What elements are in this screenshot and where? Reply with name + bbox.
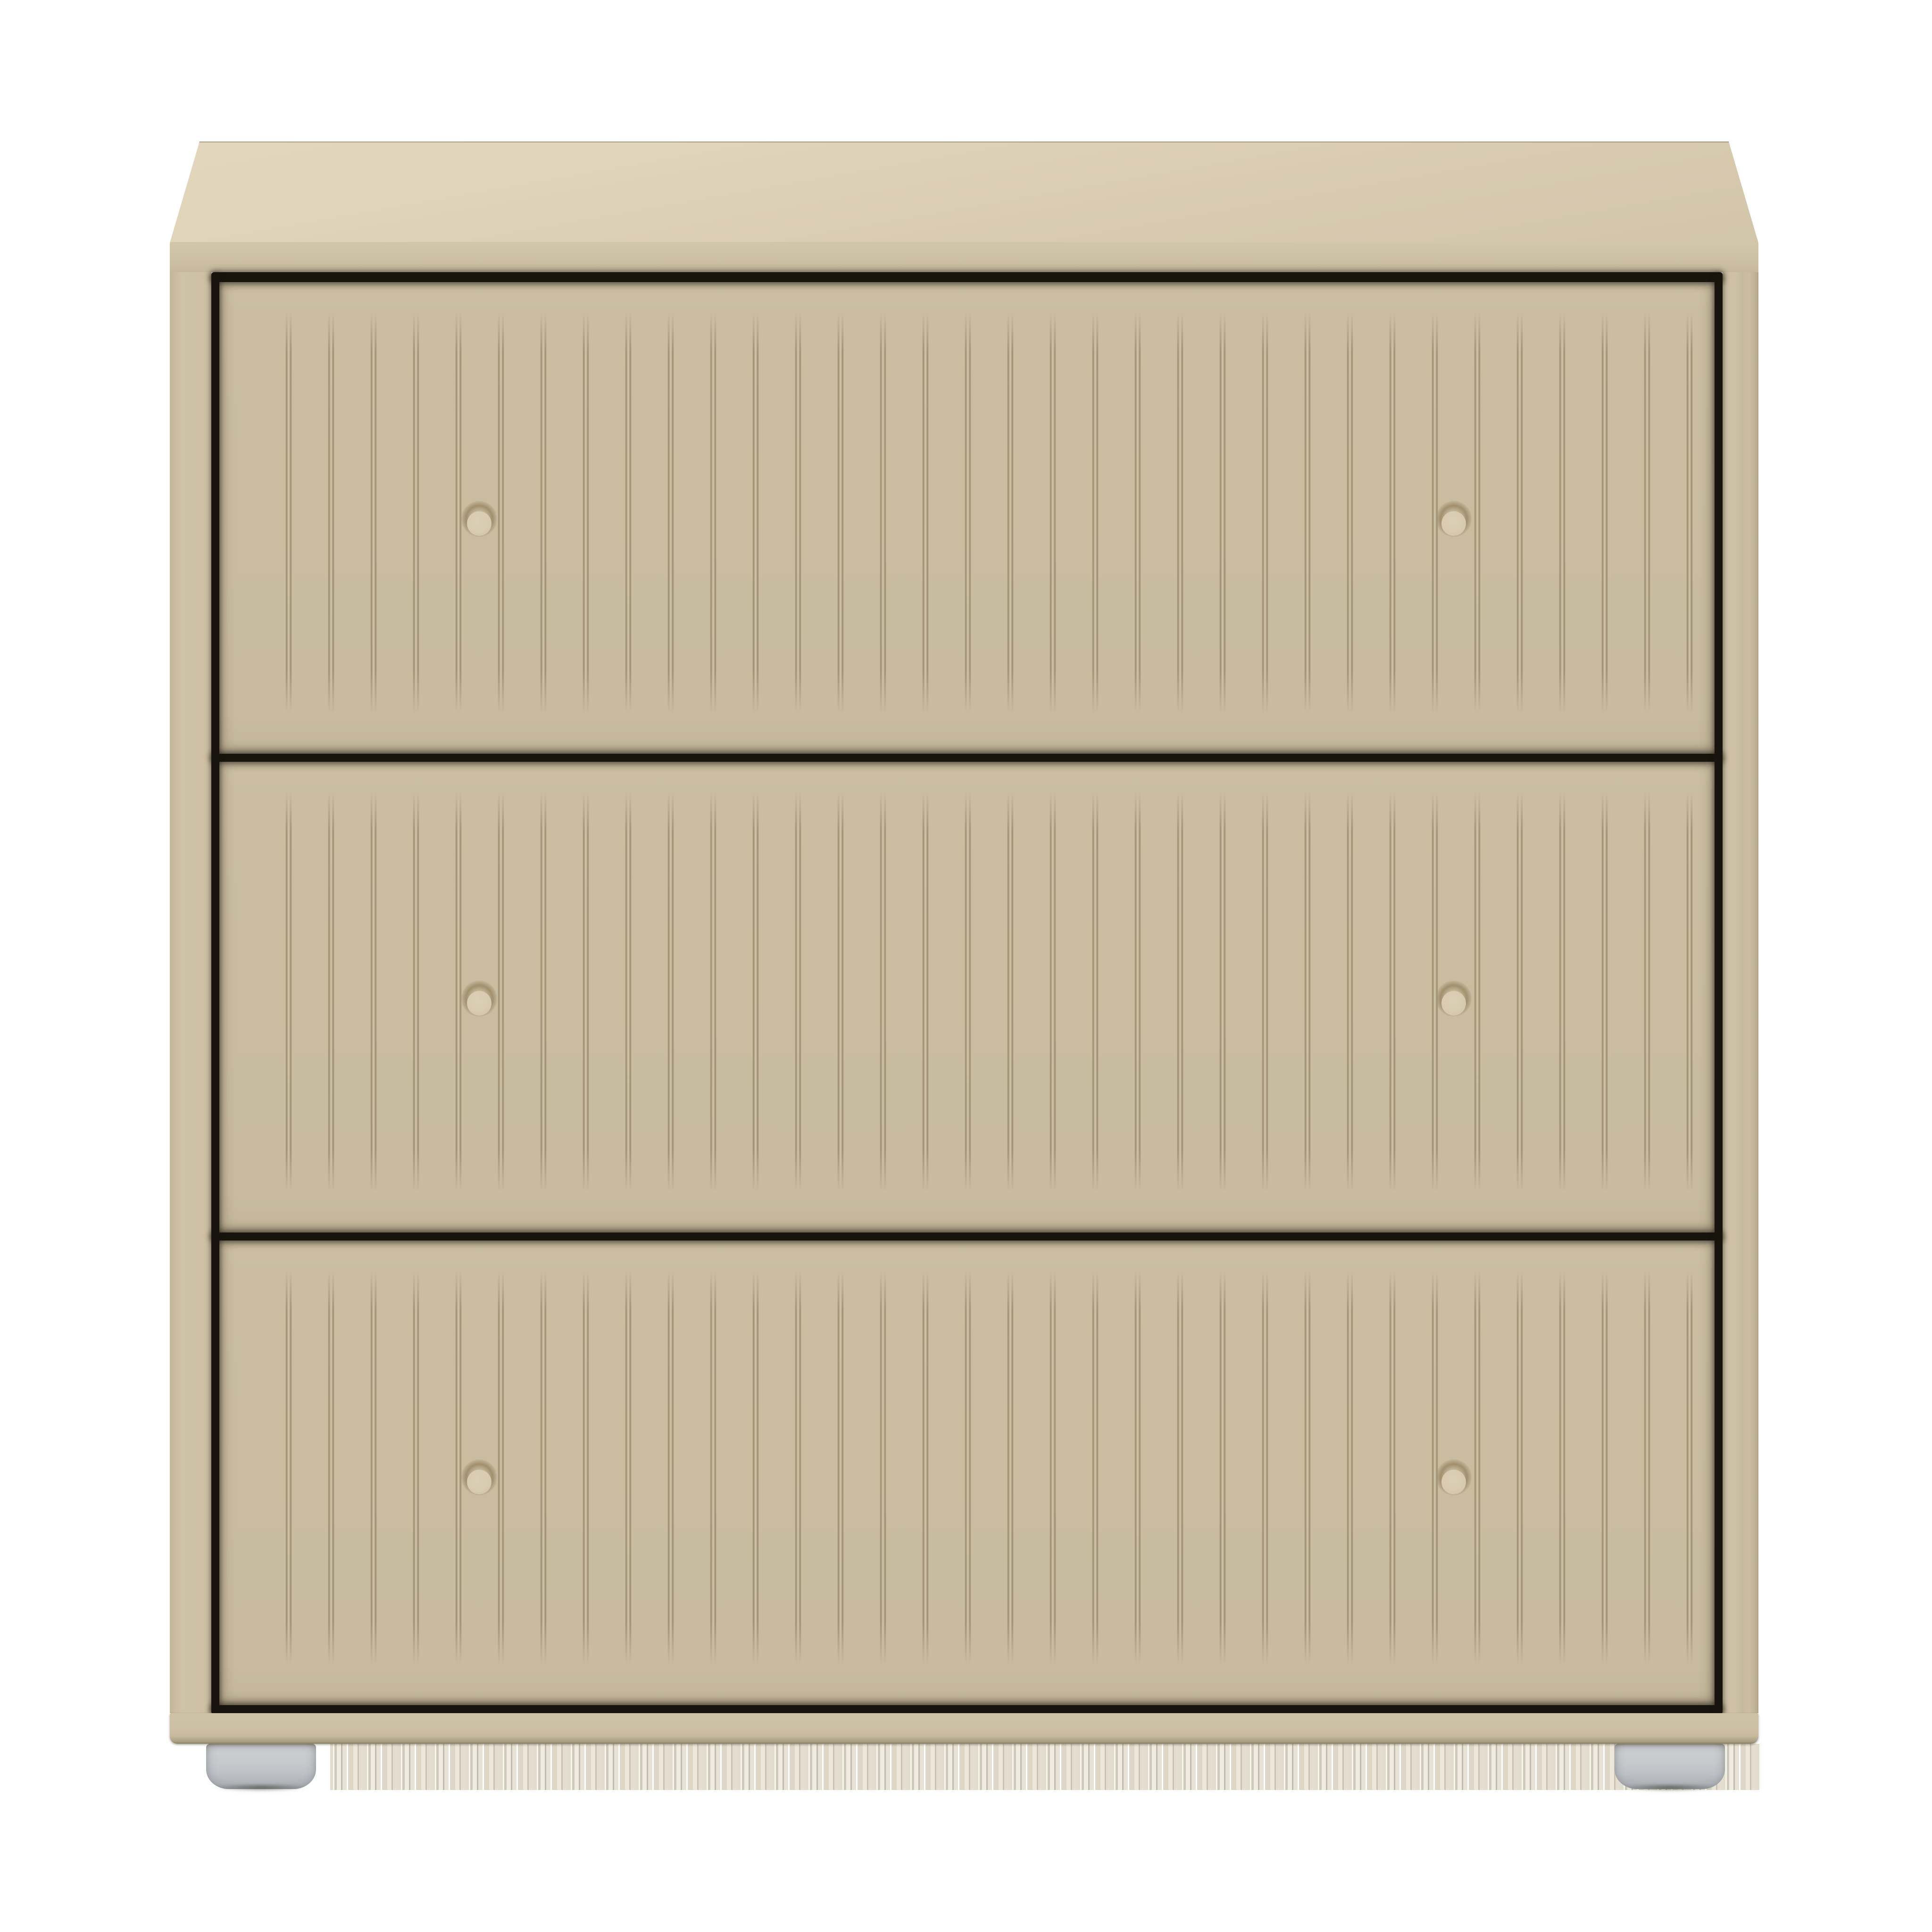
flute-groove [1389, 312, 1396, 712]
flute-groove [1644, 1271, 1650, 1664]
flute-groove [880, 312, 886, 712]
flute-groove [1601, 792, 1608, 1191]
flute-groove [752, 312, 759, 712]
flute-groove [1474, 792, 1481, 1191]
flute-groove [1686, 792, 1693, 1191]
flute-groove [1219, 1271, 1226, 1664]
flute-groove [328, 1271, 334, 1664]
base-rail [170, 1713, 1758, 1744]
flute-groove [1092, 312, 1099, 712]
panel-gap-top [211, 272, 1723, 282]
dresser [170, 142, 1758, 1744]
product-image: Product render of a beige three-drawer c… [0, 0, 1932, 1932]
drawer-2 [219, 762, 1715, 1232]
flute-groove [285, 312, 292, 712]
flute-groove [922, 792, 929, 1191]
flute-groove [583, 792, 589, 1191]
flute-groove [1092, 792, 1099, 1191]
flute-groove [1559, 792, 1566, 1191]
flute-groove [625, 1271, 632, 1664]
flute-groove [1601, 1271, 1608, 1664]
flute-groove [1516, 1271, 1523, 1664]
flute-groove [922, 312, 929, 712]
flute-groove [1389, 792, 1396, 1191]
drawer-grooves [219, 792, 1715, 1191]
flute-groove [1474, 1271, 1481, 1664]
flute-groove [540, 312, 547, 712]
matte-artifact-band [330, 1744, 1759, 1790]
flute-groove [1177, 1271, 1183, 1664]
flute-groove [1134, 792, 1141, 1191]
drawer-3-knob-left [461, 1461, 497, 1497]
flute-groove [285, 792, 292, 1191]
flute-groove [413, 792, 419, 1191]
dresser-top [170, 142, 1758, 243]
drawer-grooves [219, 1271, 1715, 1664]
flute-groove [583, 312, 589, 712]
side-stile-left [170, 272, 211, 1713]
foot-shadow [215, 1784, 308, 1791]
flute-groove [285, 1271, 292, 1664]
flute-groove [1049, 792, 1056, 1191]
panel-gap-right [1715, 274, 1723, 1715]
drawer-1-knob-left [461, 502, 497, 538]
flute-groove [498, 1271, 504, 1664]
flute-groove [625, 312, 632, 712]
flute-groove [370, 312, 377, 712]
flute-groove [328, 312, 334, 712]
image-description: Product render of a beige three-drawer c… [0, 0, 0, 0]
flute-groove [1644, 792, 1650, 1191]
side-stile-right [1723, 272, 1758, 1713]
drawer-2-knob-left [461, 982, 497, 1018]
flute-groove [1601, 312, 1608, 712]
flute-groove [1686, 1271, 1693, 1664]
flute-groove [1644, 312, 1650, 712]
flute-groove [710, 312, 716, 712]
flute-groove [370, 1271, 377, 1664]
flute-groove [1347, 312, 1353, 712]
flute-groove [498, 312, 504, 712]
flute-groove [1219, 792, 1226, 1191]
drawer-3 [219, 1241, 1715, 1705]
flute-groove [667, 1271, 674, 1664]
flute-groove [1347, 792, 1353, 1191]
flute-groove [1262, 1271, 1268, 1664]
flute-groove [455, 1271, 462, 1664]
flute-groove [1559, 312, 1566, 712]
flute-groove [1219, 312, 1226, 712]
drawer-grooves [219, 312, 1715, 712]
flute-groove [328, 792, 334, 1191]
flute-groove [540, 792, 547, 1191]
flute-groove [1007, 1271, 1014, 1664]
flute-groove [710, 792, 716, 1191]
foot-shadow [1624, 1784, 1716, 1791]
flute-groove [965, 1271, 971, 1664]
flute-groove [795, 792, 801, 1191]
panel-gap-left [211, 274, 219, 1715]
flute-groove [1049, 312, 1056, 712]
flute-groove [1262, 312, 1268, 712]
flute-groove [667, 792, 674, 1191]
drawer-1-knob-right [1436, 502, 1472, 538]
flute-groove [1304, 792, 1311, 1191]
flute-groove [455, 792, 462, 1191]
flute-groove [880, 792, 886, 1191]
flute-groove [625, 792, 632, 1191]
flute-groove [370, 792, 377, 1191]
flute-groove [540, 1271, 547, 1664]
panel-gap-2-3 [211, 1232, 1723, 1241]
flute-groove [795, 312, 801, 712]
flute-groove [1134, 1271, 1141, 1664]
flute-groove [455, 312, 462, 712]
flute-groove [1177, 792, 1183, 1191]
flute-groove [1516, 312, 1523, 712]
flute-groove [1686, 312, 1693, 712]
flute-groove [1049, 1271, 1056, 1664]
flute-groove [1304, 312, 1311, 712]
flute-groove [1007, 312, 1014, 712]
flute-groove [965, 312, 971, 712]
flute-groove [413, 312, 419, 712]
panel-gap-bottom [211, 1705, 1723, 1713]
flute-groove [498, 792, 504, 1191]
flute-groove [1177, 312, 1183, 712]
flute-groove [1559, 1271, 1566, 1664]
flute-groove [1262, 792, 1268, 1191]
flute-groove [1389, 1271, 1396, 1664]
drawer-1 [219, 282, 1715, 754]
flute-groove [1134, 312, 1141, 712]
flute-groove [710, 1271, 716, 1664]
flute-groove [880, 1271, 886, 1664]
flute-groove [1007, 792, 1014, 1191]
flute-groove [752, 1271, 759, 1664]
drawer-2-knob-right [1436, 982, 1472, 1018]
flute-groove [1474, 312, 1481, 712]
cabinet-foot-right [1615, 1744, 1725, 1789]
flute-groove [1516, 792, 1523, 1191]
flute-groove [413, 1271, 419, 1664]
panel-gap-1-2 [211, 754, 1723, 762]
flute-groove [837, 792, 844, 1191]
flute-groove [583, 1271, 589, 1664]
flute-groove [795, 1271, 801, 1664]
drawer-3-knob-right [1436, 1461, 1472, 1497]
flute-groove [837, 1271, 844, 1664]
flute-groove [922, 1271, 929, 1664]
flute-groove [1304, 1271, 1311, 1664]
flute-groove [667, 312, 674, 712]
flute-groove [752, 792, 759, 1191]
cabinet-foot-left [206, 1744, 316, 1789]
dresser-top-front-edge [170, 242, 1758, 272]
flute-groove [1092, 1271, 1099, 1664]
flute-groove [837, 312, 844, 712]
flute-groove [965, 792, 971, 1191]
flute-groove [1347, 1271, 1353, 1664]
